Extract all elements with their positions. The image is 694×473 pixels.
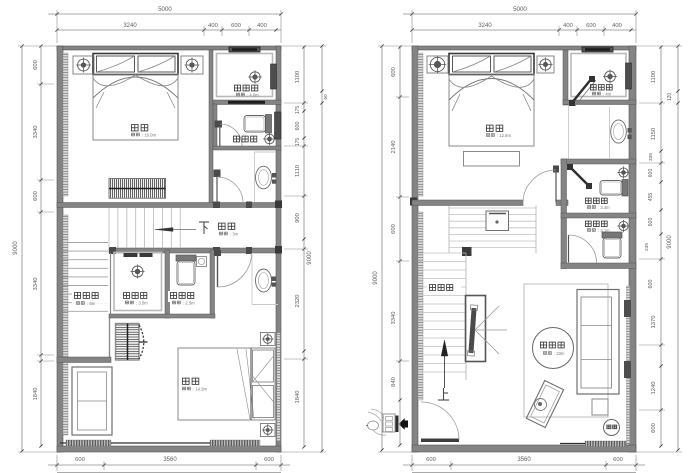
svg-text:600: 600 xyxy=(648,218,654,227)
svg-text:9000: 9000 xyxy=(373,271,379,285)
svg-text:600: 600 xyxy=(426,457,436,463)
svg-text:3340: 3340 xyxy=(391,312,397,325)
svg-text:1840: 1840 xyxy=(33,388,39,401)
svg-text:: 2.5m: : 2.5m xyxy=(183,301,195,306)
svg-text:600: 600 xyxy=(586,23,596,29)
svg-text:9000: 9000 xyxy=(13,241,19,255)
svg-text:: 4.0m: : 4.0m xyxy=(247,93,259,98)
svg-text:400: 400 xyxy=(563,23,573,29)
svg-text:: 3.5m: : 3.5m xyxy=(136,301,148,306)
svg-text:400: 400 xyxy=(612,23,622,29)
svg-text:175: 175 xyxy=(295,106,301,115)
svg-text:1100: 1100 xyxy=(295,71,301,83)
svg-text:235: 235 xyxy=(644,243,650,251)
svg-text:900: 900 xyxy=(295,213,301,223)
svg-text:335: 335 xyxy=(648,153,654,161)
svg-text:1100: 1100 xyxy=(651,71,657,83)
svg-text:9000: 9000 xyxy=(667,235,673,249)
svg-text:600: 600 xyxy=(648,169,654,178)
svg-text:60: 60 xyxy=(323,94,329,100)
svg-text:: 16.0m: : 16.0m xyxy=(142,133,156,138)
svg-text:600: 600 xyxy=(391,224,397,234)
svg-text:175: 175 xyxy=(295,138,301,147)
svg-text:600: 600 xyxy=(33,60,39,70)
svg-text:600: 600 xyxy=(648,280,654,289)
svg-text:2320: 2320 xyxy=(295,295,301,308)
svg-text:600: 600 xyxy=(391,67,397,77)
svg-text:400: 400 xyxy=(257,23,267,29)
svg-text:3240: 3240 xyxy=(478,23,492,29)
svg-text:600: 600 xyxy=(295,122,301,131)
svg-text:3340: 3340 xyxy=(33,278,39,291)
svg-text:600: 600 xyxy=(33,191,39,201)
svg-text:9000: 9000 xyxy=(307,251,313,265)
svg-text:455: 455 xyxy=(648,193,654,202)
svg-text:600: 600 xyxy=(264,457,274,463)
svg-text:2140: 2140 xyxy=(391,141,397,154)
svg-text:5000: 5000 xyxy=(513,6,527,13)
svg-text:3340: 3340 xyxy=(33,126,39,139)
svg-text:3240: 3240 xyxy=(123,23,137,29)
svg-text:600: 600 xyxy=(651,423,657,433)
svg-text:: 4m: : 4m xyxy=(603,92,612,97)
svg-text:600: 600 xyxy=(231,23,241,29)
svg-text:400: 400 xyxy=(208,23,218,29)
svg-text:1370: 1370 xyxy=(651,316,657,329)
svg-text:: 3.4m: : 3.4m xyxy=(598,205,610,210)
svg-text:: 23m: : 23m xyxy=(554,351,565,356)
svg-text:3560: 3560 xyxy=(517,457,531,463)
svg-text:1110: 1110 xyxy=(295,165,301,177)
svg-text:: 14.3m: : 14.3m xyxy=(193,387,207,392)
svg-text:600: 600 xyxy=(75,457,85,463)
svg-text:: 5m: : 5m xyxy=(87,301,96,306)
svg-text:1840: 1840 xyxy=(295,391,301,404)
svg-text:5000: 5000 xyxy=(158,6,172,13)
svg-text:840: 840 xyxy=(391,377,397,387)
svg-text:600: 600 xyxy=(613,457,623,463)
svg-text:: 3m: : 3m xyxy=(230,232,239,237)
svg-text:: 12.6m: : 12.6m xyxy=(497,133,511,138)
svg-text:3560: 3560 xyxy=(163,457,177,463)
svg-text:120: 120 xyxy=(667,93,673,102)
svg-text:1240: 1240 xyxy=(651,382,657,395)
svg-text:1150: 1150 xyxy=(651,128,657,140)
